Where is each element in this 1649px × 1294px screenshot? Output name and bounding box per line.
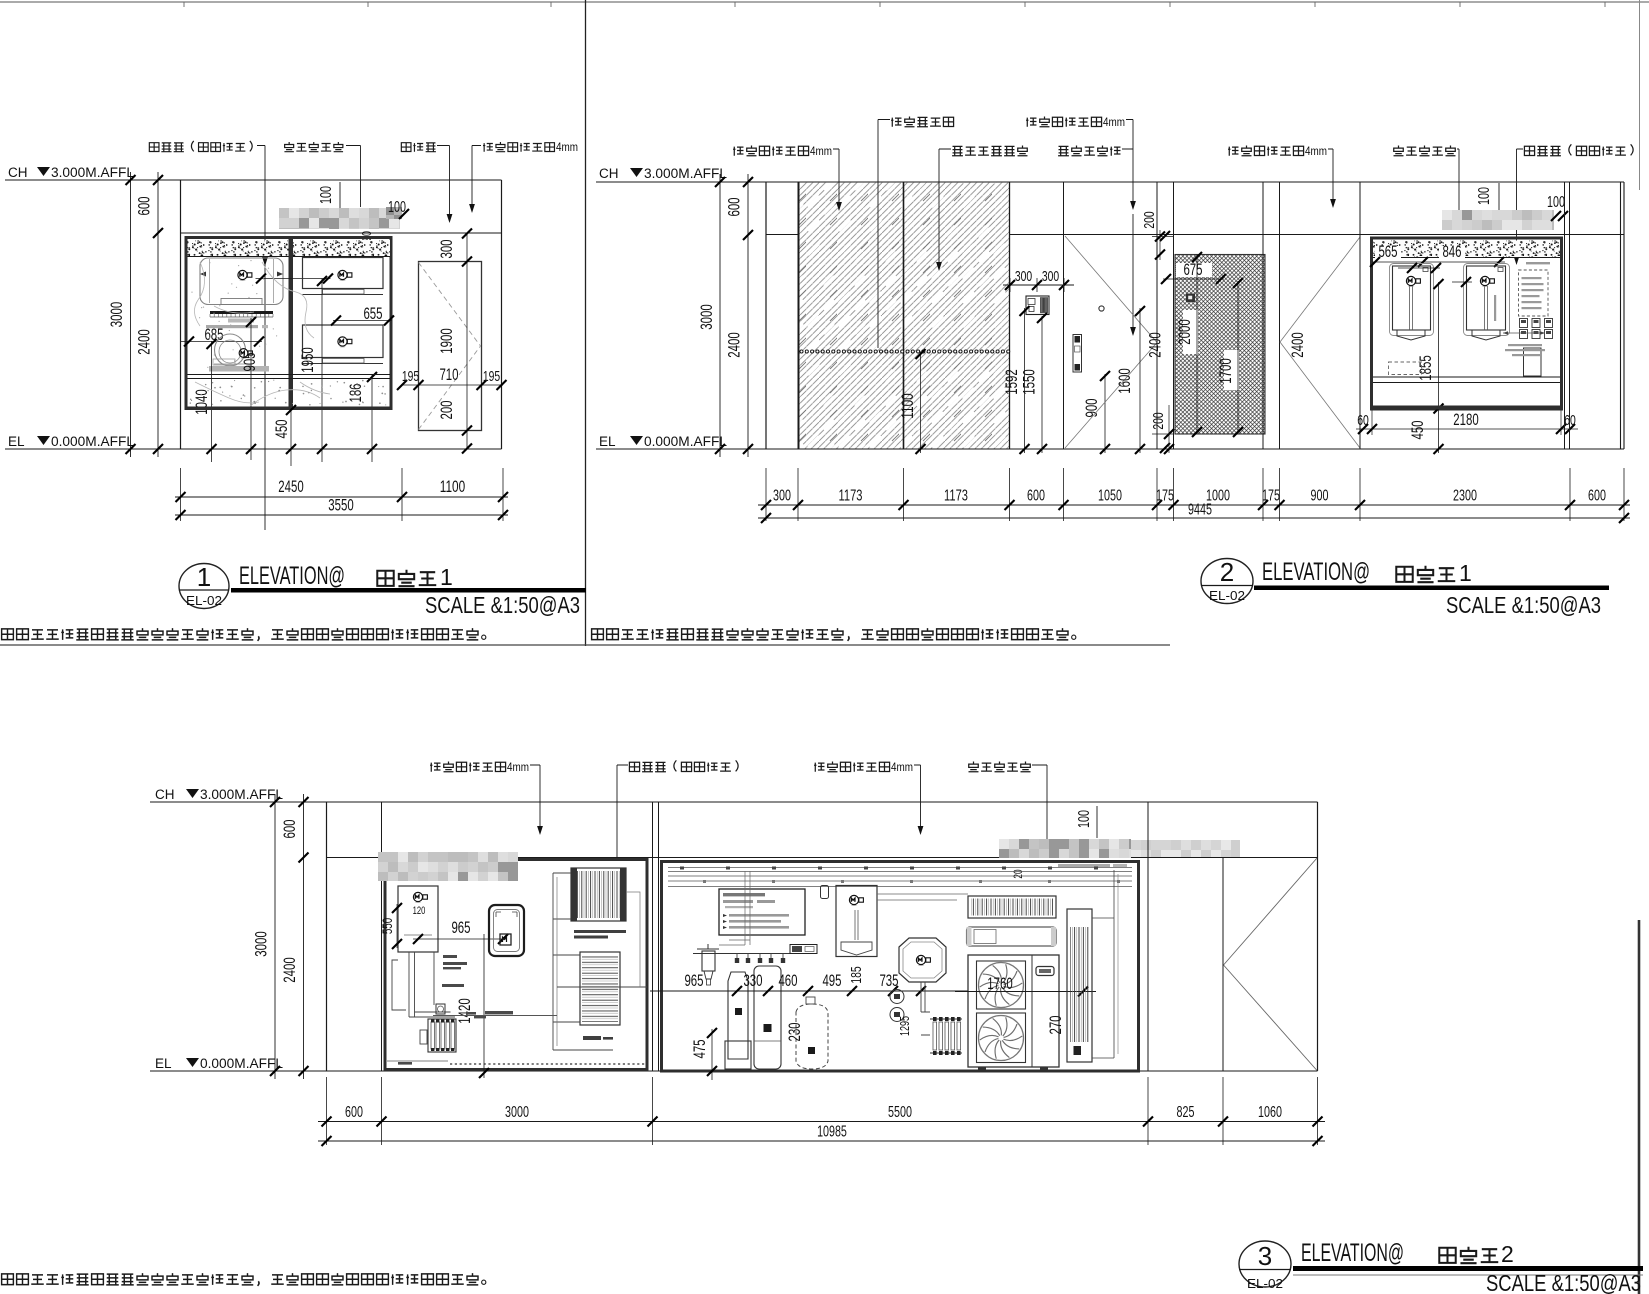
svg-text:ELEVATION@: ELEVATION@: [1262, 558, 1370, 586]
svg-text:965: 965: [451, 919, 470, 937]
svg-text:100: 100: [318, 186, 335, 204]
svg-text:3000: 3000: [253, 931, 271, 956]
svg-text:4mm: 4mm: [891, 760, 913, 774]
svg-text:SCALE &1:50@A3: SCALE &1:50@A3: [1486, 1270, 1641, 1294]
svg-text:EL: EL: [599, 434, 616, 449]
svg-text:2000: 2000: [1176, 319, 1194, 344]
svg-text:550: 550: [379, 918, 395, 934]
svg-text:900: 900: [1311, 488, 1329, 505]
svg-text:495: 495: [822, 972, 841, 990]
svg-text:ELEVATION@: ELEVATION@: [1301, 1239, 1404, 1267]
svg-text:4mm: 4mm: [810, 144, 832, 158]
svg-text:3: 3: [1258, 1241, 1272, 1271]
svg-text:EL: EL: [8, 434, 25, 449]
svg-text:1173: 1173: [944, 488, 968, 505]
svg-text:3.000M.AFFL: 3.000M.AFFL: [200, 787, 283, 802]
svg-text:3000: 3000: [698, 304, 716, 329]
svg-text:300: 300: [1015, 268, 1032, 285]
svg-text:2400: 2400: [1289, 332, 1307, 357]
svg-text:195: 195: [402, 368, 419, 385]
svg-text:0.000M.AFFL: 0.000M.AFFL: [644, 434, 727, 449]
svg-text:330: 330: [743, 972, 762, 990]
svg-text:600: 600: [1588, 488, 1606, 505]
svg-text:CH: CH: [8, 165, 28, 180]
svg-text:2450: 2450: [278, 478, 303, 496]
svg-text:EL-02: EL-02: [186, 593, 222, 608]
svg-text:1295: 1295: [897, 1016, 912, 1036]
svg-text:0.000M.AFFL: 0.000M.AFFL: [200, 1056, 283, 1071]
svg-text:2180: 2180: [1453, 411, 1478, 429]
svg-text:2: 2: [1220, 557, 1234, 587]
svg-text:2400: 2400: [136, 329, 154, 354]
svg-text:565: 565: [1378, 243, 1397, 261]
svg-text:10985: 10985: [817, 1124, 847, 1141]
svg-text:300: 300: [773, 488, 791, 505]
svg-text:2400: 2400: [726, 332, 744, 357]
svg-text:175: 175: [1156, 488, 1174, 505]
svg-text:120: 120: [413, 905, 426, 917]
svg-text:9445: 9445: [1188, 502, 1212, 519]
svg-text:20: 20: [1011, 869, 1025, 878]
svg-text:4mm: 4mm: [1305, 144, 1327, 158]
svg-text:675: 675: [1183, 261, 1202, 279]
svg-text:200: 200: [438, 400, 456, 419]
svg-text:735: 735: [879, 972, 898, 990]
svg-text:175: 175: [1262, 488, 1280, 505]
svg-text:600: 600: [1027, 488, 1045, 505]
svg-text:195: 195: [483, 368, 500, 385]
svg-text:900: 900: [1083, 398, 1101, 417]
svg-text:1060: 1060: [1258, 1104, 1282, 1121]
svg-text:4mm: 4mm: [507, 760, 529, 774]
svg-text:1100: 1100: [440, 478, 465, 496]
svg-text:ELEVATION@: ELEVATION@: [239, 562, 345, 590]
svg-text:905: 905: [241, 352, 259, 371]
svg-text:600: 600: [281, 819, 299, 838]
svg-text:1: 1: [1459, 560, 1472, 586]
svg-text:186: 186: [347, 383, 365, 402]
svg-text:SCALE &1:50@A3: SCALE &1:50@A3: [425, 592, 580, 618]
svg-text:2: 2: [1501, 1241, 1514, 1267]
svg-text:1: 1: [440, 564, 453, 590]
svg-text:3.000M.AFFL: 3.000M.AFFL: [644, 166, 727, 181]
svg-text:100: 100: [1076, 810, 1093, 828]
svg-text:1592: 1592: [1003, 369, 1021, 394]
svg-text:200: 200: [1141, 211, 1158, 228]
svg-text:1100: 1100: [899, 393, 917, 418]
svg-text:450: 450: [273, 419, 291, 438]
svg-text:600: 600: [726, 197, 744, 216]
svg-text:2400: 2400: [281, 957, 299, 982]
svg-text:2400: 2400: [1147, 332, 1165, 357]
svg-text:2300: 2300: [1453, 488, 1477, 505]
svg-text:825: 825: [1177, 1104, 1195, 1121]
svg-text:1760: 1760: [987, 975, 1012, 993]
svg-text:200: 200: [1150, 412, 1167, 429]
svg-text:EL-02: EL-02: [1209, 588, 1245, 603]
svg-text:100: 100: [1476, 187, 1493, 205]
svg-text:846: 846: [1442, 243, 1461, 261]
svg-text:460: 460: [778, 972, 797, 990]
svg-text:1050: 1050: [1098, 488, 1122, 505]
svg-text:1550: 1550: [1021, 369, 1039, 394]
svg-text:CH: CH: [599, 166, 619, 181]
svg-text:60: 60: [1357, 412, 1369, 429]
svg-text:965: 965: [684, 972, 703, 990]
svg-text:1700: 1700: [1217, 358, 1235, 383]
svg-text:EL: EL: [155, 1056, 172, 1071]
svg-text:185: 185: [848, 966, 865, 983]
svg-text:475: 475: [691, 1039, 709, 1058]
svg-text:600: 600: [345, 1104, 363, 1121]
svg-text:270: 270: [1047, 1015, 1065, 1034]
svg-text:3.000M.AFFL: 3.000M.AFFL: [51, 165, 134, 180]
svg-text:0.000M.AFFL: 0.000M.AFFL: [51, 434, 134, 449]
svg-text:1040: 1040: [193, 389, 211, 414]
svg-text:300: 300: [1042, 268, 1059, 285]
svg-text:100: 100: [1547, 194, 1565, 211]
svg-text:450: 450: [1409, 420, 1427, 439]
svg-text:4mm: 4mm: [1103, 115, 1125, 129]
svg-text:3550: 3550: [328, 497, 353, 515]
svg-text:4mm: 4mm: [556, 140, 578, 154]
svg-text:1173: 1173: [839, 488, 863, 505]
svg-text:1600: 1600: [1116, 368, 1134, 393]
svg-text:5500: 5500: [888, 1104, 912, 1121]
svg-text:710: 710: [439, 366, 458, 384]
svg-text:3000: 3000: [505, 1104, 529, 1121]
svg-text:230: 230: [786, 1022, 804, 1041]
svg-text:1900: 1900: [438, 328, 456, 353]
svg-text:3000: 3000: [108, 302, 126, 327]
svg-text:600: 600: [136, 196, 154, 215]
svg-text:1420: 1420: [456, 998, 474, 1023]
svg-text:EL-02: EL-02: [1247, 1276, 1283, 1291]
svg-text:300: 300: [438, 239, 456, 258]
svg-text:1950: 1950: [299, 347, 317, 372]
svg-text:1: 1: [197, 562, 211, 592]
svg-text:SCALE &1:50@A3: SCALE &1:50@A3: [1446, 592, 1601, 618]
svg-text:CH: CH: [155, 787, 175, 802]
